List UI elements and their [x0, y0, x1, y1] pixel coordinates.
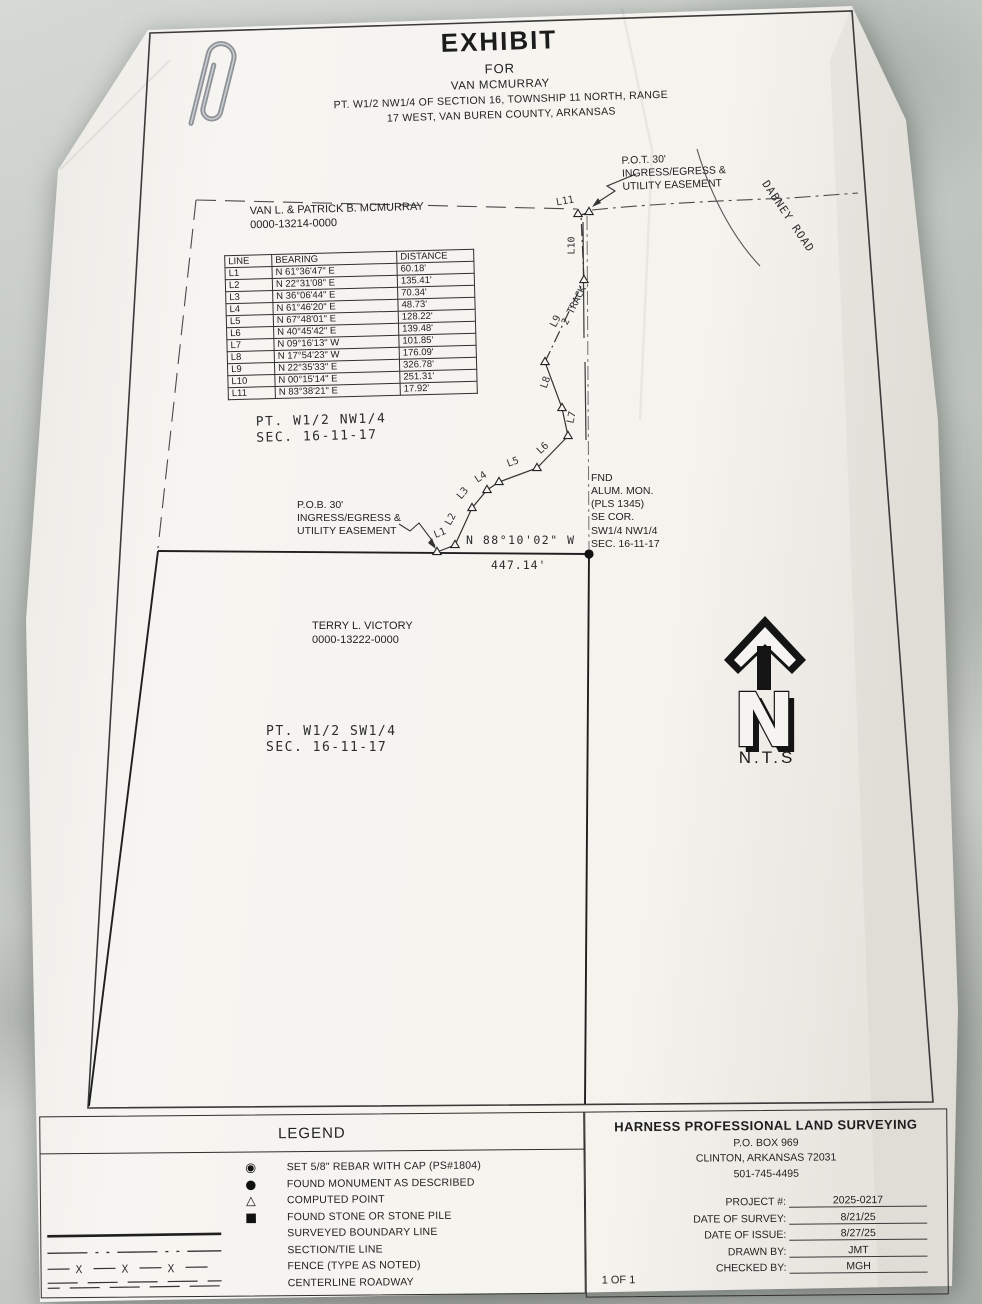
surveyed-boundary-line-sample — [45, 1228, 223, 1242]
field-project: PROJECT #: 2025-0217 — [586, 1190, 947, 1210]
pob-note: P.O.B. 30' INGRESS/EGRESS & UTILITY EASE… — [297, 499, 401, 538]
legend-item-centerline-roadway: CENTERLINE ROADWAY — [42, 1272, 585, 1293]
field-drawn-by: DRAWN BY: JMT — [586, 1239, 947, 1259]
field-value: 8/27/25 — [789, 1227, 927, 1241]
found-stone-icon: ■ — [227, 1210, 275, 1224]
centerline-roadway-sample — [46, 1278, 224, 1292]
field-value: MGH — [790, 1260, 928, 1274]
field-checked-by: CHECKED BY: MGH — [586, 1256, 947, 1276]
fence-x-mark: X — [121, 1263, 128, 1276]
field-label: DRAWN BY: — [586, 1245, 786, 1259]
nts-label: N.T.S — [722, 748, 812, 768]
sheet-count: 1 OF 1 — [602, 1274, 636, 1286]
surveyor-company: HARNESS PROFESSIONAL LAND SURVEYING — [585, 1116, 946, 1134]
legend-item-label: FOUND STONE OR STONE PILE — [275, 1210, 452, 1224]
area-label-nw: PT. W1/2 NW1/4 SEC. 16-11-17 — [256, 411, 387, 446]
legend-item-label: SURVEYED BOUNDARY LINE — [275, 1226, 437, 1239]
marble-background: { "sheet_title": { "main": "EXHIBIT", "f… — [0, 0, 982, 1304]
computed-point-icon: △ — [227, 1194, 275, 1208]
traverse-label-l10: L10 — [567, 236, 578, 254]
found-monument-marker — [584, 549, 593, 558]
boundary-bearing-label: N 88°10'02" W — [466, 533, 576, 547]
cell-line: L11 — [228, 387, 275, 400]
legend-title: LEGEND — [40, 1113, 583, 1155]
surveyor-city: CLINTON, ARKANSAS 72031 — [586, 1150, 947, 1165]
line-table: LINE BEARING DISTANCE L1N 61°36'47" E60.… — [224, 249, 478, 400]
legend-item-label: SET 5/8" REBAR WITH CAP (PS#1804) — [275, 1160, 481, 1174]
legend-item-label: FOUND MONUMENT AS DESCRIBED — [275, 1176, 475, 1190]
survey-photo: N N EXHIBIT FOR VAN MCMURRAY PT. W1/2 NW… — [0, 0, 982, 1304]
found-monument-note: FND ALUM. MON. (PLS 1345) SE COR. SW1/4 … — [591, 472, 660, 551]
field-label: DATE OF ISSUE: — [586, 1229, 786, 1243]
section-tie-line-sample — [45, 1245, 223, 1259]
cell-bearing: N 83°38'21" E — [275, 383, 400, 398]
surveyor-phone: 501-745-4495 — [586, 1166, 947, 1181]
legend-item-label: CENTERLINE ROADWAY — [276, 1276, 414, 1289]
legend-item-label: FENCE (TYPE AS NOTED) — [275, 1259, 420, 1272]
surveyor-pobox: P.O. BOX 969 — [585, 1135, 946, 1150]
fence-x-mark: X — [75, 1263, 82, 1275]
legend: LEGEND ◉ SET 5/8" REBAR WITH CAP (PS#180… — [39, 1112, 586, 1299]
field-date-of-issue: DATE OF ISSUE: 8/27/25 — [586, 1223, 947, 1243]
field-label: DATE OF SURVEY: — [586, 1212, 786, 1226]
legend-item-label: COMPUTED POINT — [275, 1194, 385, 1207]
set-rebar-icon: ◉ — [227, 1161, 275, 1175]
legend-item-label: SECTION/TIE LINE — [275, 1243, 382, 1256]
plat-drawing: N N — [0, 0, 982, 1304]
area-label-sw: PT. W1/2 SW1/4 SEC. 16-11-17 — [266, 724, 397, 755]
cell-distance: 17.92' — [400, 381, 477, 395]
fence-line-sample: X X X — [45, 1260, 223, 1276]
surveyor-title-block: HARNESS PROFESSIONAL LAND SURVEYING P.O.… — [584, 1108, 949, 1297]
owner-label-mcmurray: VAN L. & PATRICK B. MCMURRAY 0000-13214-… — [250, 200, 425, 233]
owner-label-victory: TERRY L. VICTORY 0000-13222-0000 — [312, 619, 413, 648]
fence-x-mark: X — [167, 1262, 174, 1275]
field-value: 8/21/25 — [789, 1210, 927, 1224]
field-date-of-survey: DATE OF SURVEY: 8/21/25 — [586, 1206, 947, 1226]
boundary-distance-label: 447.14' — [491, 558, 546, 572]
field-label: PROJECT #: — [586, 1196, 786, 1210]
field-value: JMT — [789, 1243, 927, 1257]
found-monument-icon: ● — [227, 1177, 275, 1191]
pot-note: P.O.T. 30' INGRESS/EGRESS & UTILITY EASE… — [621, 151, 726, 194]
field-value: 2025-0217 — [789, 1194, 927, 1208]
